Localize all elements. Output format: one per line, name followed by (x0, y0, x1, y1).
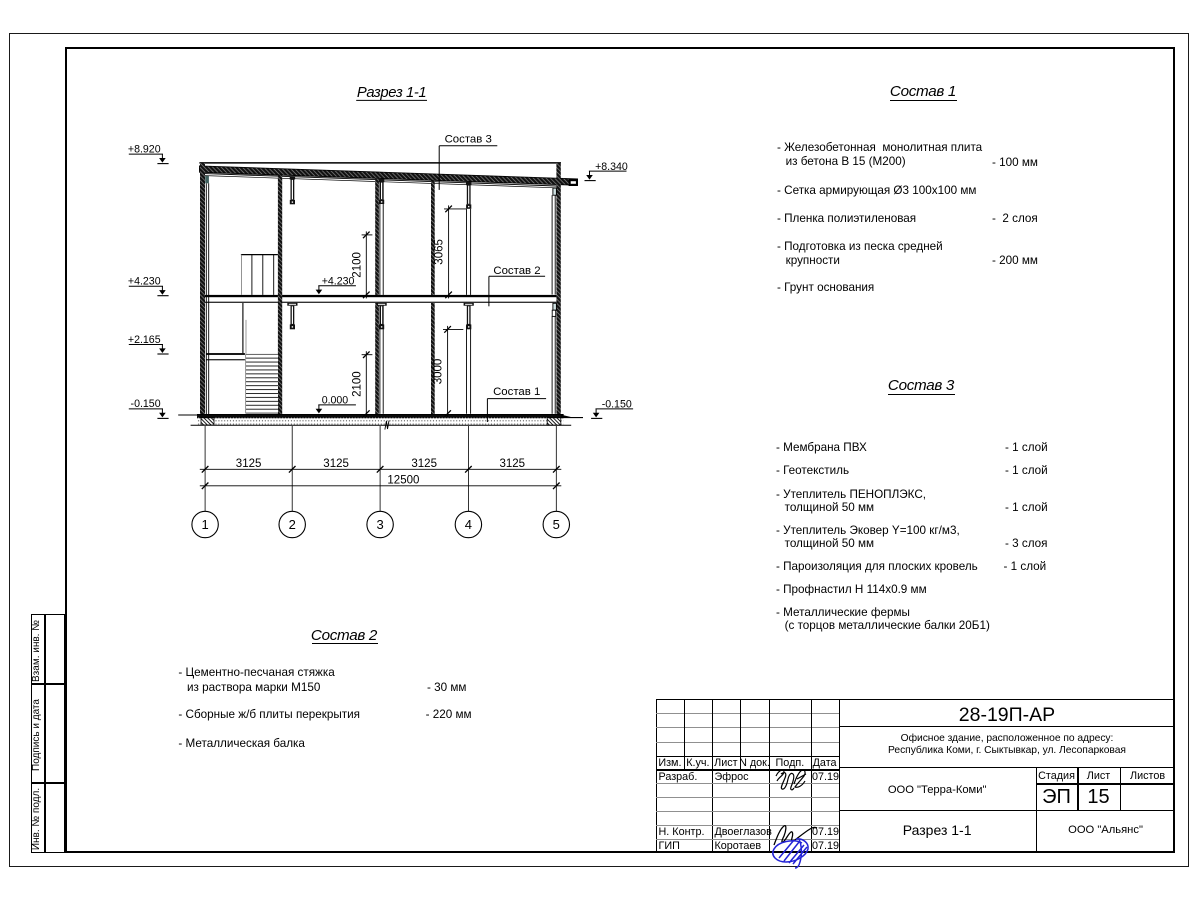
svg-text:3065: 3065 (434, 239, 446, 265)
svg-text:3: 3 (376, 517, 383, 532)
svg-text:Состав 2: Состав 2 (493, 265, 540, 277)
svg-text:+4.230: +4.230 (128, 276, 161, 288)
svg-text:Состав 1: Состав 1 (493, 386, 540, 398)
svg-text:3125: 3125 (411, 458, 437, 470)
svg-text:+2.165: +2.165 (128, 334, 161, 346)
svg-text:3125: 3125 (323, 458, 349, 470)
svg-text:2: 2 (289, 517, 296, 532)
svg-text:+8.340: +8.340 (595, 161, 628, 173)
svg-text:+4.230: +4.230 (322, 275, 355, 287)
svg-text:Состав 3: Состав 3 (445, 133, 492, 145)
svg-text:1: 1 (201, 517, 208, 532)
svg-text:4: 4 (465, 517, 472, 532)
svg-text:3125: 3125 (500, 458, 526, 470)
svg-text:3000: 3000 (433, 359, 445, 385)
svg-text:5: 5 (553, 517, 560, 532)
svg-text:0.000: 0.000 (322, 395, 349, 407)
svg-text:12500: 12500 (387, 474, 419, 486)
svg-text:2100: 2100 (351, 252, 363, 278)
svg-text:-0.150: -0.150 (131, 398, 161, 410)
svg-text:+8.920: +8.920 (128, 143, 161, 155)
svg-text:3125: 3125 (236, 458, 262, 470)
svg-text:2100: 2100 (351, 371, 363, 397)
svg-text:-0.150: -0.150 (602, 399, 632, 411)
svg-text:Разрез 1-1: Разрез 1-1 (357, 85, 426, 101)
